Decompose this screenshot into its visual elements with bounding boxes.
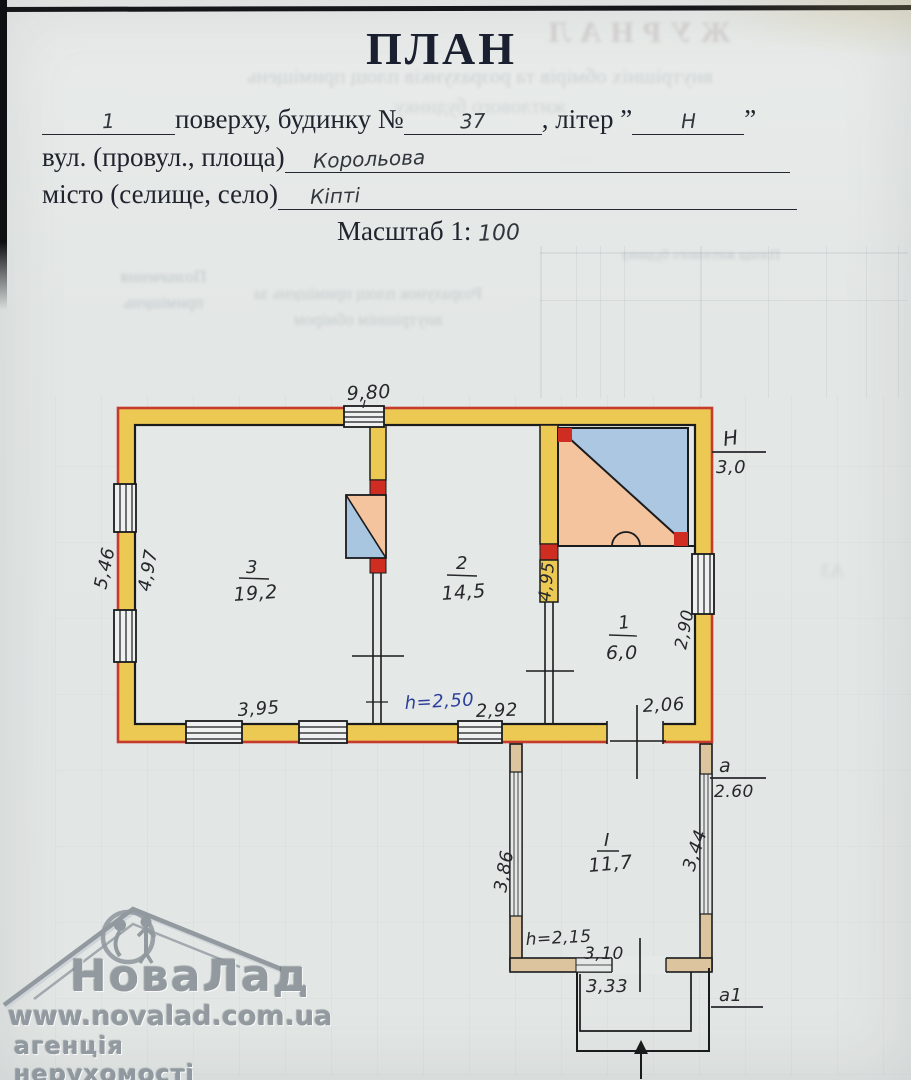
room2-number: 2 <box>456 553 468 574</box>
scale-label: Масштаб 1: <box>337 216 471 246</box>
room1-number: 1 <box>617 612 631 634</box>
room1-underline <box>609 635 637 636</box>
closing-quote: ” <box>744 104 756 134</box>
bleed-table-line <box>768 246 769 398</box>
house-number-value: 37 <box>460 109 486 134</box>
bleed-table-line <box>624 246 625 398</box>
annex-mark-letter: а <box>719 755 731 777</box>
annex-room-area: 11,7 <box>588 851 634 877</box>
dim-partition-label: 4,95 <box>535 561 559 603</box>
street-value: Корольова <box>312 145 425 173</box>
bleed-table-col1: Позначення приміщень <box>86 264 241 315</box>
dim-bottom-left-label: 3,95 <box>237 697 280 721</box>
annex-mark-value: 2.60 <box>714 782 754 802</box>
bleed-table-line <box>866 246 867 398</box>
form-line-floor: 1поверху, будинку №37, літер ”Н” <box>42 104 756 135</box>
porch-mark-label: а1 <box>719 985 742 1006</box>
scale-value: 100 <box>478 220 521 246</box>
bleed-table-line <box>540 246 542 398</box>
room3-underline <box>239 578 269 579</box>
bleed-table-line <box>576 246 577 398</box>
floor-field: 1 <box>42 104 175 135</box>
paper-tint-corner <box>690 0 911 60</box>
page-title: ПЛАН <box>366 22 517 75</box>
veranda-shape <box>558 428 695 546</box>
bleed-table-line <box>700 246 702 398</box>
bleed-table-line <box>600 246 601 398</box>
annex-dim-outer-label: 3,33 <box>586 976 628 997</box>
dim-left-outer-label: 5,46 <box>90 546 119 592</box>
scale-line: Масштаб 1: 100 <box>337 216 520 247</box>
floor-plan-drawing: 9,80 5,46 4,97 3 19,2 2 14,5 4,95 1 6,0 … <box>0 380 911 1080</box>
dim-top-label: 9,80 <box>346 381 391 405</box>
form-line-street: вул. (провул., площа)Корольова <box>42 142 790 173</box>
bleed-table-line <box>540 300 908 301</box>
letter-field: Н <box>632 104 744 135</box>
annex-dim-inner-label: 3,10 <box>584 944 624 964</box>
city-value: Кіпті <box>310 183 361 209</box>
room3-area: 19,2 <box>233 581 279 606</box>
height-mark-value: 3,0 <box>716 457 746 478</box>
room2-area: 14,5 <box>441 580 487 605</box>
room1-area: 6,0 <box>606 642 638 664</box>
height-mark-main: Н 3,0 <box>712 425 766 478</box>
city-label: місто (селище, село) <box>42 179 278 209</box>
scanned-plan-page: ЖУРНАЛ внутрішніх обмірів та розрахунків… <box>0 0 911 1080</box>
dim-bottom-right-label: 2,06 <box>642 694 685 717</box>
bleed-table-line <box>826 246 827 398</box>
bleed-table-col2: Розрахунок площ приміщень за внутрішнім … <box>248 281 488 332</box>
form-line-city: місто (селище, село)Кіпті <box>42 179 797 210</box>
dim-bottom-mid-label: 2,92 <box>475 700 518 722</box>
ceiling-height-main-label: h=2,50 <box>404 689 475 714</box>
ceiling-height-annex-label: h=2,15 <box>525 927 592 950</box>
bleed-table-col3: Площа житлового будинку <box>618 246 783 266</box>
letter-value: Н <box>680 109 696 134</box>
room3-number: 3 <box>246 557 258 578</box>
street-field: Корольова <box>285 142 790 173</box>
entrance-arrow-icon <box>634 1040 648 1054</box>
floor-value: 1 <box>102 109 116 133</box>
letter-label: , літер ” <box>542 104 633 134</box>
room2-underline <box>447 575 477 576</box>
house-number-field: 37 <box>404 104 542 135</box>
bleed-table-line <box>898 246 899 398</box>
annex-room-number: I <box>604 830 610 851</box>
height-mark-letter: Н <box>721 425 740 451</box>
porch-mark-a1: а1 <box>711 985 763 1007</box>
annex-mark-a: а 2.60 <box>710 755 766 802</box>
bleed-table-line <box>540 252 908 254</box>
floor-label: поверху, будинку № <box>175 104 404 134</box>
scan-edge-left <box>0 0 7 310</box>
city-field: Кіпті <box>278 179 797 210</box>
street-label: вул. (провул., площа) <box>42 142 285 172</box>
stove-icon <box>346 495 386 558</box>
